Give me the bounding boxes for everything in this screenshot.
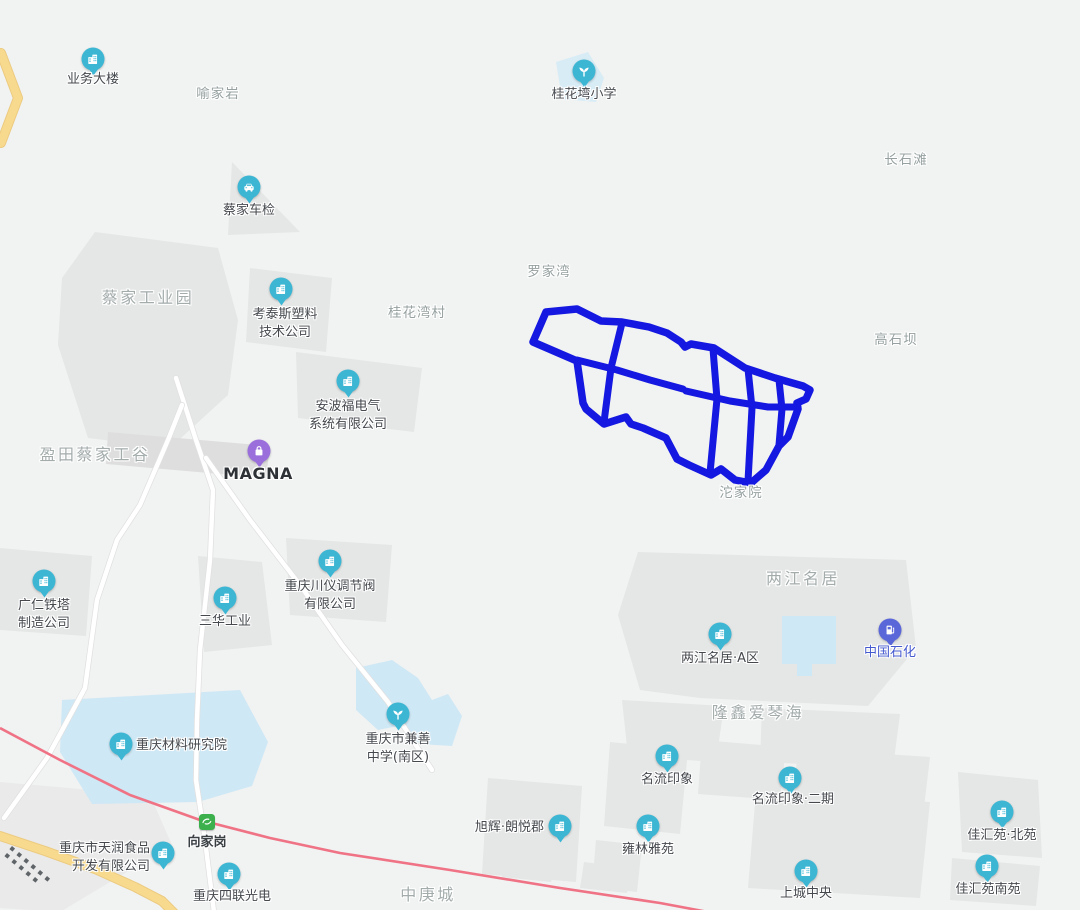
area-label-caijia-industrial-park: 蔡家工业园 bbox=[102, 289, 195, 307]
poi-label-silian-optoelectronics[interactable]: 重庆四联光电 bbox=[193, 888, 271, 906]
area-label-tuojiayuan: 沱家院 bbox=[719, 484, 763, 502]
building-pin-tianrun-food[interactable] bbox=[152, 842, 175, 865]
building-icon bbox=[713, 627, 728, 642]
poi-label-guihuawan-school[interactable]: 桂花塆小学 bbox=[551, 86, 616, 104]
building-icon bbox=[274, 282, 289, 297]
area-label-yingtian-caijia: 盈田蔡家工谷 bbox=[39, 446, 150, 464]
school-pin-jianshan-school[interactable] bbox=[387, 703, 410, 726]
highlighted-region-overlay[interactable] bbox=[0, 0, 1080, 910]
poi-label-xuhui[interactable]: 旭辉·朗悦郡 bbox=[475, 819, 544, 837]
area-label-liangjiang-mingju: 两江名居 bbox=[766, 570, 840, 588]
train-pin-xiangjiagang-station[interactable] bbox=[199, 814, 215, 830]
poi-label-anbofu[interactable]: 安波福电气系统有限公司 bbox=[309, 398, 387, 434]
poi-label-sinopec[interactable]: 中国石化 bbox=[864, 644, 916, 662]
building-pin-kaotaisi[interactable] bbox=[270, 278, 293, 301]
poi-label-cailiao-institute[interactable]: 重庆材料研究院 bbox=[136, 737, 227, 755]
building-pin-yonglin[interactable] bbox=[637, 815, 660, 838]
poi-label-sanhua[interactable]: 三华工业 bbox=[199, 613, 251, 631]
poi-label-shangcheng-central[interactable]: 上城中央 bbox=[780, 885, 832, 903]
area-label-luojiawan: 罗家湾 bbox=[527, 263, 571, 281]
poi-label-yewu-dalou[interactable]: 业务大楼 bbox=[67, 71, 119, 89]
building-icon bbox=[995, 805, 1010, 820]
building-pin-yewu-dalou[interactable] bbox=[82, 48, 105, 71]
building-pin-xuhui[interactable] bbox=[549, 815, 572, 838]
building-icon bbox=[799, 864, 814, 879]
highlighted-road-network bbox=[533, 309, 810, 483]
building-pin-anbofu[interactable] bbox=[337, 370, 360, 393]
poi-label-caijia-vehicle-inspection[interactable]: 蔡家车检 bbox=[223, 202, 275, 220]
poi-label-yonglin[interactable]: 雍林雅苑 bbox=[622, 841, 674, 859]
building-icon bbox=[641, 819, 656, 834]
building-pin-mingliu-phase2[interactable] bbox=[779, 767, 802, 790]
school-icon bbox=[577, 64, 592, 79]
poi-label-tianrun-food[interactable]: 重庆市天润食品开发有限公司 bbox=[59, 840, 150, 876]
building-icon bbox=[980, 859, 995, 874]
poi-label-jiahui-south[interactable]: 佳汇苑南苑 bbox=[955, 881, 1020, 899]
poi-label-xiangjiagang-station[interactable]: 向家岗 bbox=[187, 834, 226, 852]
building-icon bbox=[553, 819, 568, 834]
building-icon bbox=[783, 771, 798, 786]
poi-label-chuanyi-valve[interactable]: 重庆川仪调节阀有限公司 bbox=[284, 578, 375, 614]
poi-label-liangjiang-a[interactable]: 两江名居·A区 bbox=[681, 650, 759, 668]
area-label-yujiayan: 喻家岩 bbox=[196, 85, 240, 103]
car-pin-caijia-vehicle-inspection[interactable] bbox=[238, 176, 261, 199]
building-pin-sanhua[interactable] bbox=[214, 587, 237, 610]
building-icon bbox=[114, 737, 129, 752]
gas-pin-sinopec[interactable] bbox=[879, 619, 902, 642]
building-icon bbox=[37, 574, 52, 589]
building-icon bbox=[218, 591, 233, 606]
building-icon bbox=[660, 749, 675, 764]
building-icon bbox=[156, 846, 171, 861]
train-icon bbox=[201, 816, 213, 828]
bag-pin-magna[interactable] bbox=[248, 440, 271, 463]
building-pin-liangjiang-a[interactable] bbox=[709, 623, 732, 646]
poi-label-mingliu[interactable]: 名流印象 bbox=[641, 771, 693, 789]
poi-label-kaotaisi[interactable]: 考泰斯塑料技术公司 bbox=[252, 306, 317, 342]
building-icon bbox=[86, 52, 101, 67]
car-icon bbox=[242, 180, 257, 195]
building-pin-cailiao-institute[interactable] bbox=[110, 733, 133, 756]
building-icon bbox=[222, 867, 237, 882]
building-pin-shangcheng-central[interactable] bbox=[795, 860, 818, 883]
bag-icon bbox=[252, 444, 267, 459]
building-pin-guangren-tieta[interactable] bbox=[33, 570, 56, 593]
school-pin-guihuawan-school[interactable] bbox=[573, 60, 596, 83]
building-pin-silian-optoelectronics[interactable] bbox=[218, 863, 241, 886]
building-icon bbox=[341, 374, 356, 389]
poi-label-jiahui-north[interactable]: 佳汇苑·北苑 bbox=[967, 827, 1036, 845]
gas-icon bbox=[883, 623, 898, 638]
building-pin-jiahui-north[interactable] bbox=[991, 801, 1014, 824]
building-pin-chuanyi-valve[interactable] bbox=[319, 550, 342, 573]
area-label-zhonggengcheng: 中庚城 bbox=[400, 886, 456, 904]
area-label-longxin-aiqinhai: 隆鑫爱琴海 bbox=[712, 704, 805, 722]
area-label-gaoshiba: 高石坝 bbox=[874, 331, 918, 349]
poi-label-magna[interactable]: MAGNA bbox=[223, 465, 293, 483]
building-pin-mingliu[interactable] bbox=[656, 745, 679, 768]
building-pin-jiahui-south[interactable] bbox=[976, 855, 999, 878]
poi-label-mingliu-phase2[interactable]: 名流印象·二期 bbox=[752, 791, 834, 809]
area-label-guihuawan-village: 桂花湾村 bbox=[388, 304, 446, 322]
school-icon bbox=[391, 707, 406, 722]
map-viewport[interactable]: 喻家岩长石滩蔡家工业园桂花湾村罗家湾高石坝盈田蔡家工谷沱家院两江名居隆鑫爱琴海中… bbox=[0, 0, 1080, 910]
poi-label-jianshan-school[interactable]: 重庆市兼善中学(南区) bbox=[365, 731, 430, 767]
building-icon bbox=[323, 554, 338, 569]
poi-label-guangren-tieta[interactable]: 广仁铁塔制造公司 bbox=[18, 597, 70, 633]
area-label-changshitan: 长石滩 bbox=[884, 151, 928, 169]
